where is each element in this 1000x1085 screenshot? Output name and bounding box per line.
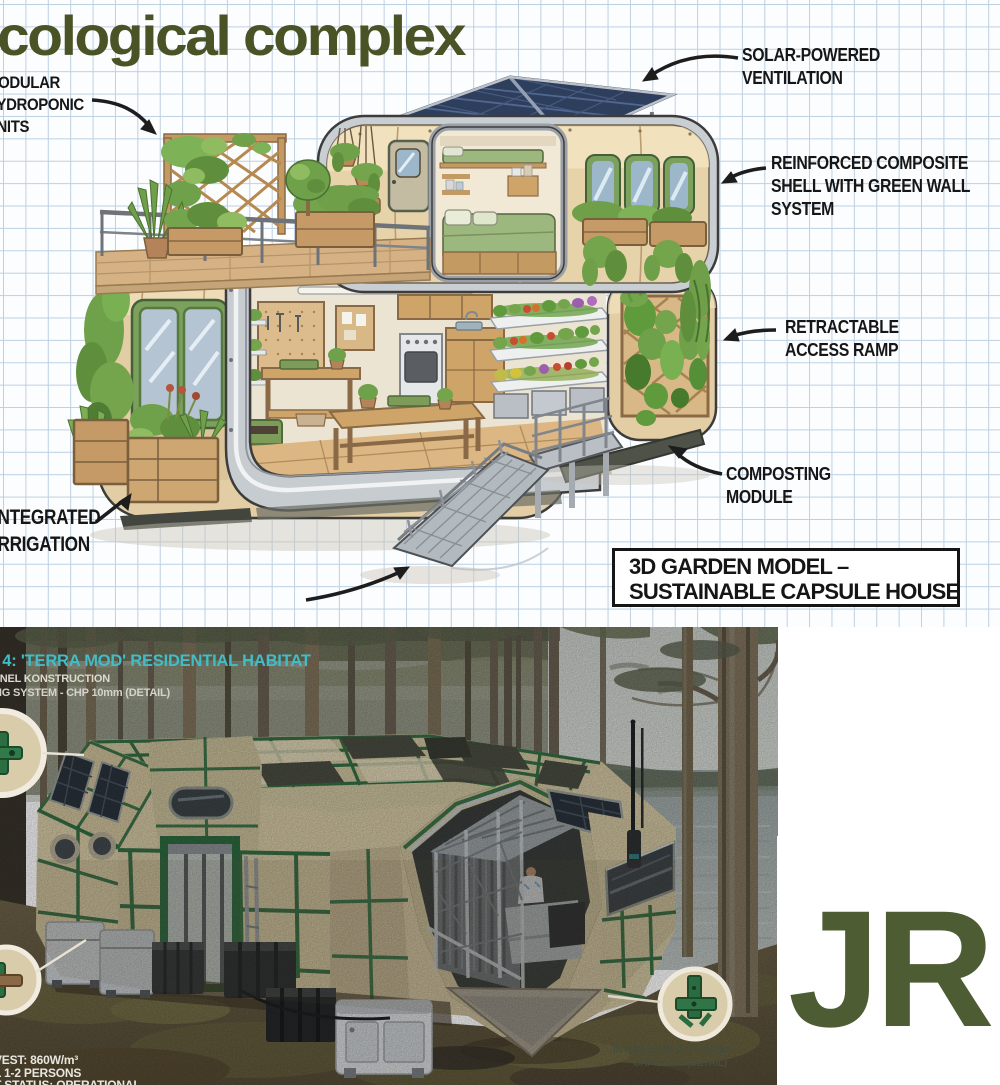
svg-text:INTERLOCKING SYSTEM: INTERLOCKING SYSTEM [613,1045,729,1056]
svg-text:T 4: 'TERRA MOD' RESIDENTIAL H: T 4: 'TERRA MOD' RESIDENTIAL HABITAT [0,652,311,670]
svg-text:VEST: 860W/m³: VEST: 860W/m³ [0,1053,78,1067]
svg-text:ANEL KONSTRUCTION: ANEL KONSTRUCTION [0,673,110,685]
svg-text:T STATUS: OPERATIONAL: T STATUS: OPERATIONAL [0,1078,140,1085]
svg-text:NG SYSTEM - CHP 10mm (DETAIL): NG SYSTEM - CHP 10mm (DETAIL) [0,687,170,699]
svg-text:CHP 10mm (DETAIL): CHP 10mm (DETAIL) [633,1058,727,1069]
